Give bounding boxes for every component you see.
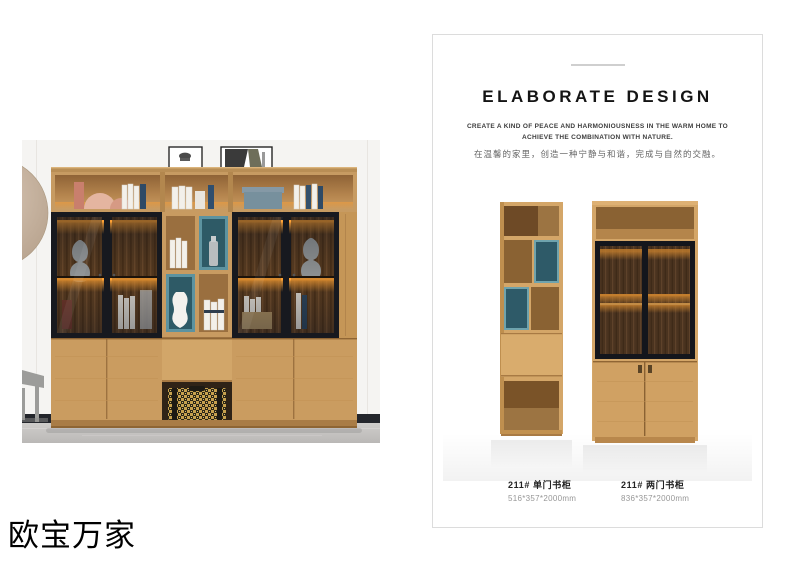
product-label-single-door: 211# 单门书柜 516*357*2000mm — [508, 478, 576, 503]
card-title: ELABORATE DESIGN — [433, 87, 762, 107]
product-image-two-door-bookcase — [591, 199, 699, 445]
card-subtitle: CREATE A KIND OF PEACE AND HARMONIOUSNES… — [433, 121, 762, 143]
product-label-two-door: 211# 两门书柜 836*357*2000mm — [621, 478, 689, 503]
framed-art-right — [221, 147, 272, 169]
product-model: 211# 单门书柜 — [508, 478, 576, 491]
lifestyle-photo-illustration — [22, 140, 380, 443]
glass-cabinet-right — [232, 212, 339, 338]
framed-art-left — [169, 147, 202, 169]
product-model: 211# 两门书柜 — [621, 478, 689, 491]
bookcase-shadow — [46, 428, 362, 433]
bookcase-side-panel — [339, 212, 357, 338]
catalog-page: { "brand": { "name": "欧宝万家" }, "photo": … — [0, 0, 800, 564]
lifestyle-photo — [22, 140, 380, 443]
product-image-single-door-bookcase — [499, 200, 564, 440]
bookcase — [46, 167, 362, 433]
center-shelf-module — [162, 212, 232, 420]
top-divider-line — [571, 64, 625, 66]
card-tagline-cn: 在温馨的家里，创造一种宁静与和谐，完成与自然的交融。 — [433, 148, 762, 160]
glass-cabinet-left — [51, 212, 162, 338]
design-info-card: ELABORATE DESIGN CREATE A KIND OF PEACE … — [432, 34, 763, 528]
product-reflection — [583, 445, 707, 473]
product-dimensions: 516*357*2000mm — [508, 494, 576, 503]
product-dimensions: 836*357*2000mm — [621, 494, 689, 503]
product-reflection — [491, 440, 572, 468]
card-subtitle-line1: CREATE A KIND OF PEACE AND HARMONIOUSNES… — [433, 121, 762, 132]
brand-name: 欧宝万家 — [8, 510, 136, 555]
bookcase-top-shelf — [51, 172, 357, 212]
card-subtitle-line2: ACHIEVE THE COMBINATION WITH NATURE. — [433, 132, 762, 143]
